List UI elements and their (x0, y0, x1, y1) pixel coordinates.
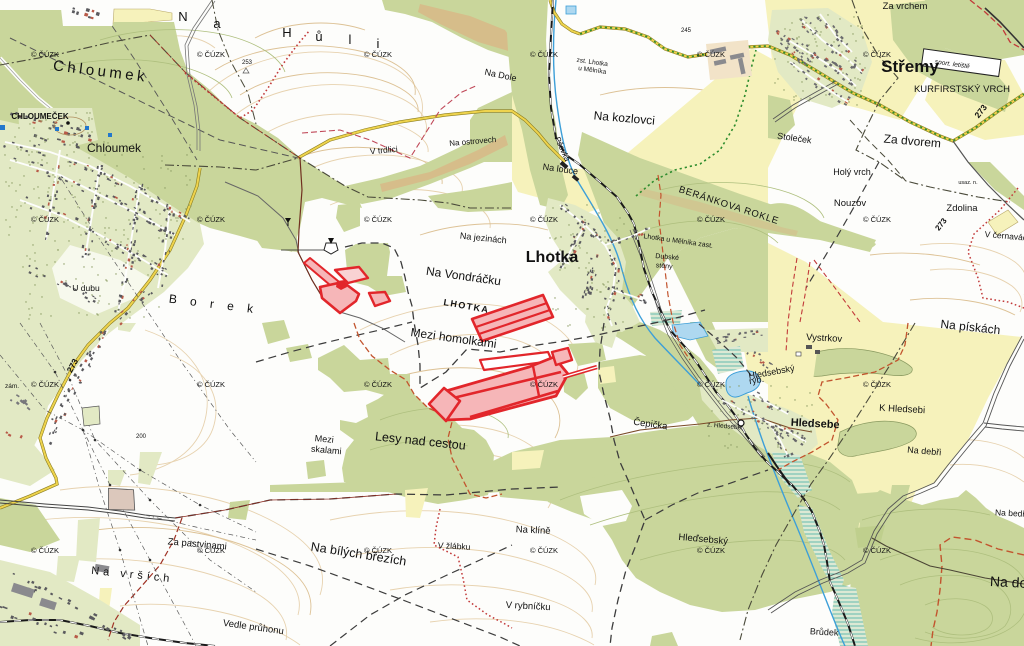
svg-text:© ČÚZK: © ČÚZK (364, 546, 392, 555)
svg-text:© ČÚZK: © ČÚZK (530, 380, 558, 389)
svg-text:Hledsebe: Hledsebe (790, 417, 839, 432)
svg-text:© ČÚZK: © ČÚZK (863, 215, 891, 224)
svg-text:Brůdek: Brůdek (810, 626, 839, 638)
svg-text:© ČÚZK: © ČÚZK (863, 50, 891, 59)
svg-text:© ČÚZK: © ČÚZK (697, 50, 725, 59)
svg-text:Střemy: Střemy (881, 57, 939, 76)
svg-text:Lhotka: Lhotka (526, 249, 579, 266)
svg-text:© ČÚZK: © ČÚZK (197, 50, 225, 59)
svg-text:usaz. n.: usaz. n. (958, 180, 978, 186)
svg-text:Chloumek: Chloumek (87, 141, 142, 155)
svg-text:H: H (282, 25, 291, 40)
svg-text:© ČÚZK: © ČÚZK (697, 546, 725, 555)
svg-text:© ČÚZK: © ČÚZK (31, 546, 59, 555)
svg-text:stěny: stěny (655, 262, 673, 270)
svg-text:l: l (349, 32, 352, 47)
svg-text:200: 200 (136, 434, 147, 440)
svg-text:CHLOUMEČEK: CHLOUMEČEK (11, 112, 69, 121)
svg-text:ů: ů (315, 29, 322, 44)
svg-text:Mezi: Mezi (314, 433, 334, 445)
svg-text:KURFIRSTSKÝ VRCH: KURFIRSTSKÝ VRCH (914, 84, 1010, 95)
svg-text:© ČÚZK: © ČÚZK (530, 215, 558, 224)
svg-text:© ČÚZK: © ČÚZK (31, 215, 59, 224)
svg-text:V rybníčku: V rybníčku (505, 600, 550, 613)
svg-text:© ČÚZK: © ČÚZK (197, 546, 225, 555)
svg-text:zám.: zám. (5, 383, 19, 390)
svg-text:© ČÚZK: © ČÚZK (530, 546, 558, 555)
svg-text:i: i (377, 36, 380, 51)
svg-text:253: 253 (242, 60, 253, 66)
svg-text:Na dol: Na dol (990, 573, 1024, 591)
svg-text:© ČÚZK: © ČÚZK (197, 380, 225, 389)
svg-text:Na bedř: Na bedř (995, 507, 1024, 519)
svg-text:© ČÚZK: © ČÚZK (697, 215, 725, 224)
svg-text:245: 245 (681, 28, 692, 34)
svg-text:© ČÚZK: © ČÚZK (31, 50, 59, 59)
svg-text:Zdolina: Zdolina (946, 203, 978, 214)
svg-text:Nouzov: Nouzov (834, 198, 866, 209)
svg-text:U dubu: U dubu (72, 283, 100, 293)
svg-text:© ČÚZK: © ČÚZK (530, 50, 558, 59)
svg-text:© ČÚZK: © ČÚZK (863, 546, 891, 555)
svg-text:© ČÚZK: © ČÚZK (31, 380, 59, 389)
svg-text:Vystrkov: Vystrkov (806, 332, 843, 345)
svg-text:Na klíně: Na klíně (515, 524, 550, 537)
svg-text:a: a (213, 16, 221, 31)
svg-text:V žlábku: V žlábku (438, 540, 471, 552)
svg-text:© ČÚZK: © ČÚZK (364, 380, 392, 389)
svg-text:© ČÚZK: © ČÚZK (863, 380, 891, 389)
svg-text:© ČÚZK: © ČÚZK (364, 50, 392, 59)
svg-text:© ČÚZK: © ČÚZK (364, 215, 392, 224)
svg-text:Za vrchem: Za vrchem (883, 1, 928, 12)
svg-text:Holý vrch: Holý vrch (833, 167, 871, 177)
svg-text:N: N (178, 9, 187, 24)
svg-text:© ČÚZK: © ČÚZK (197, 215, 225, 224)
svg-text:© ČÚZK: © ČÚZK (697, 380, 725, 389)
